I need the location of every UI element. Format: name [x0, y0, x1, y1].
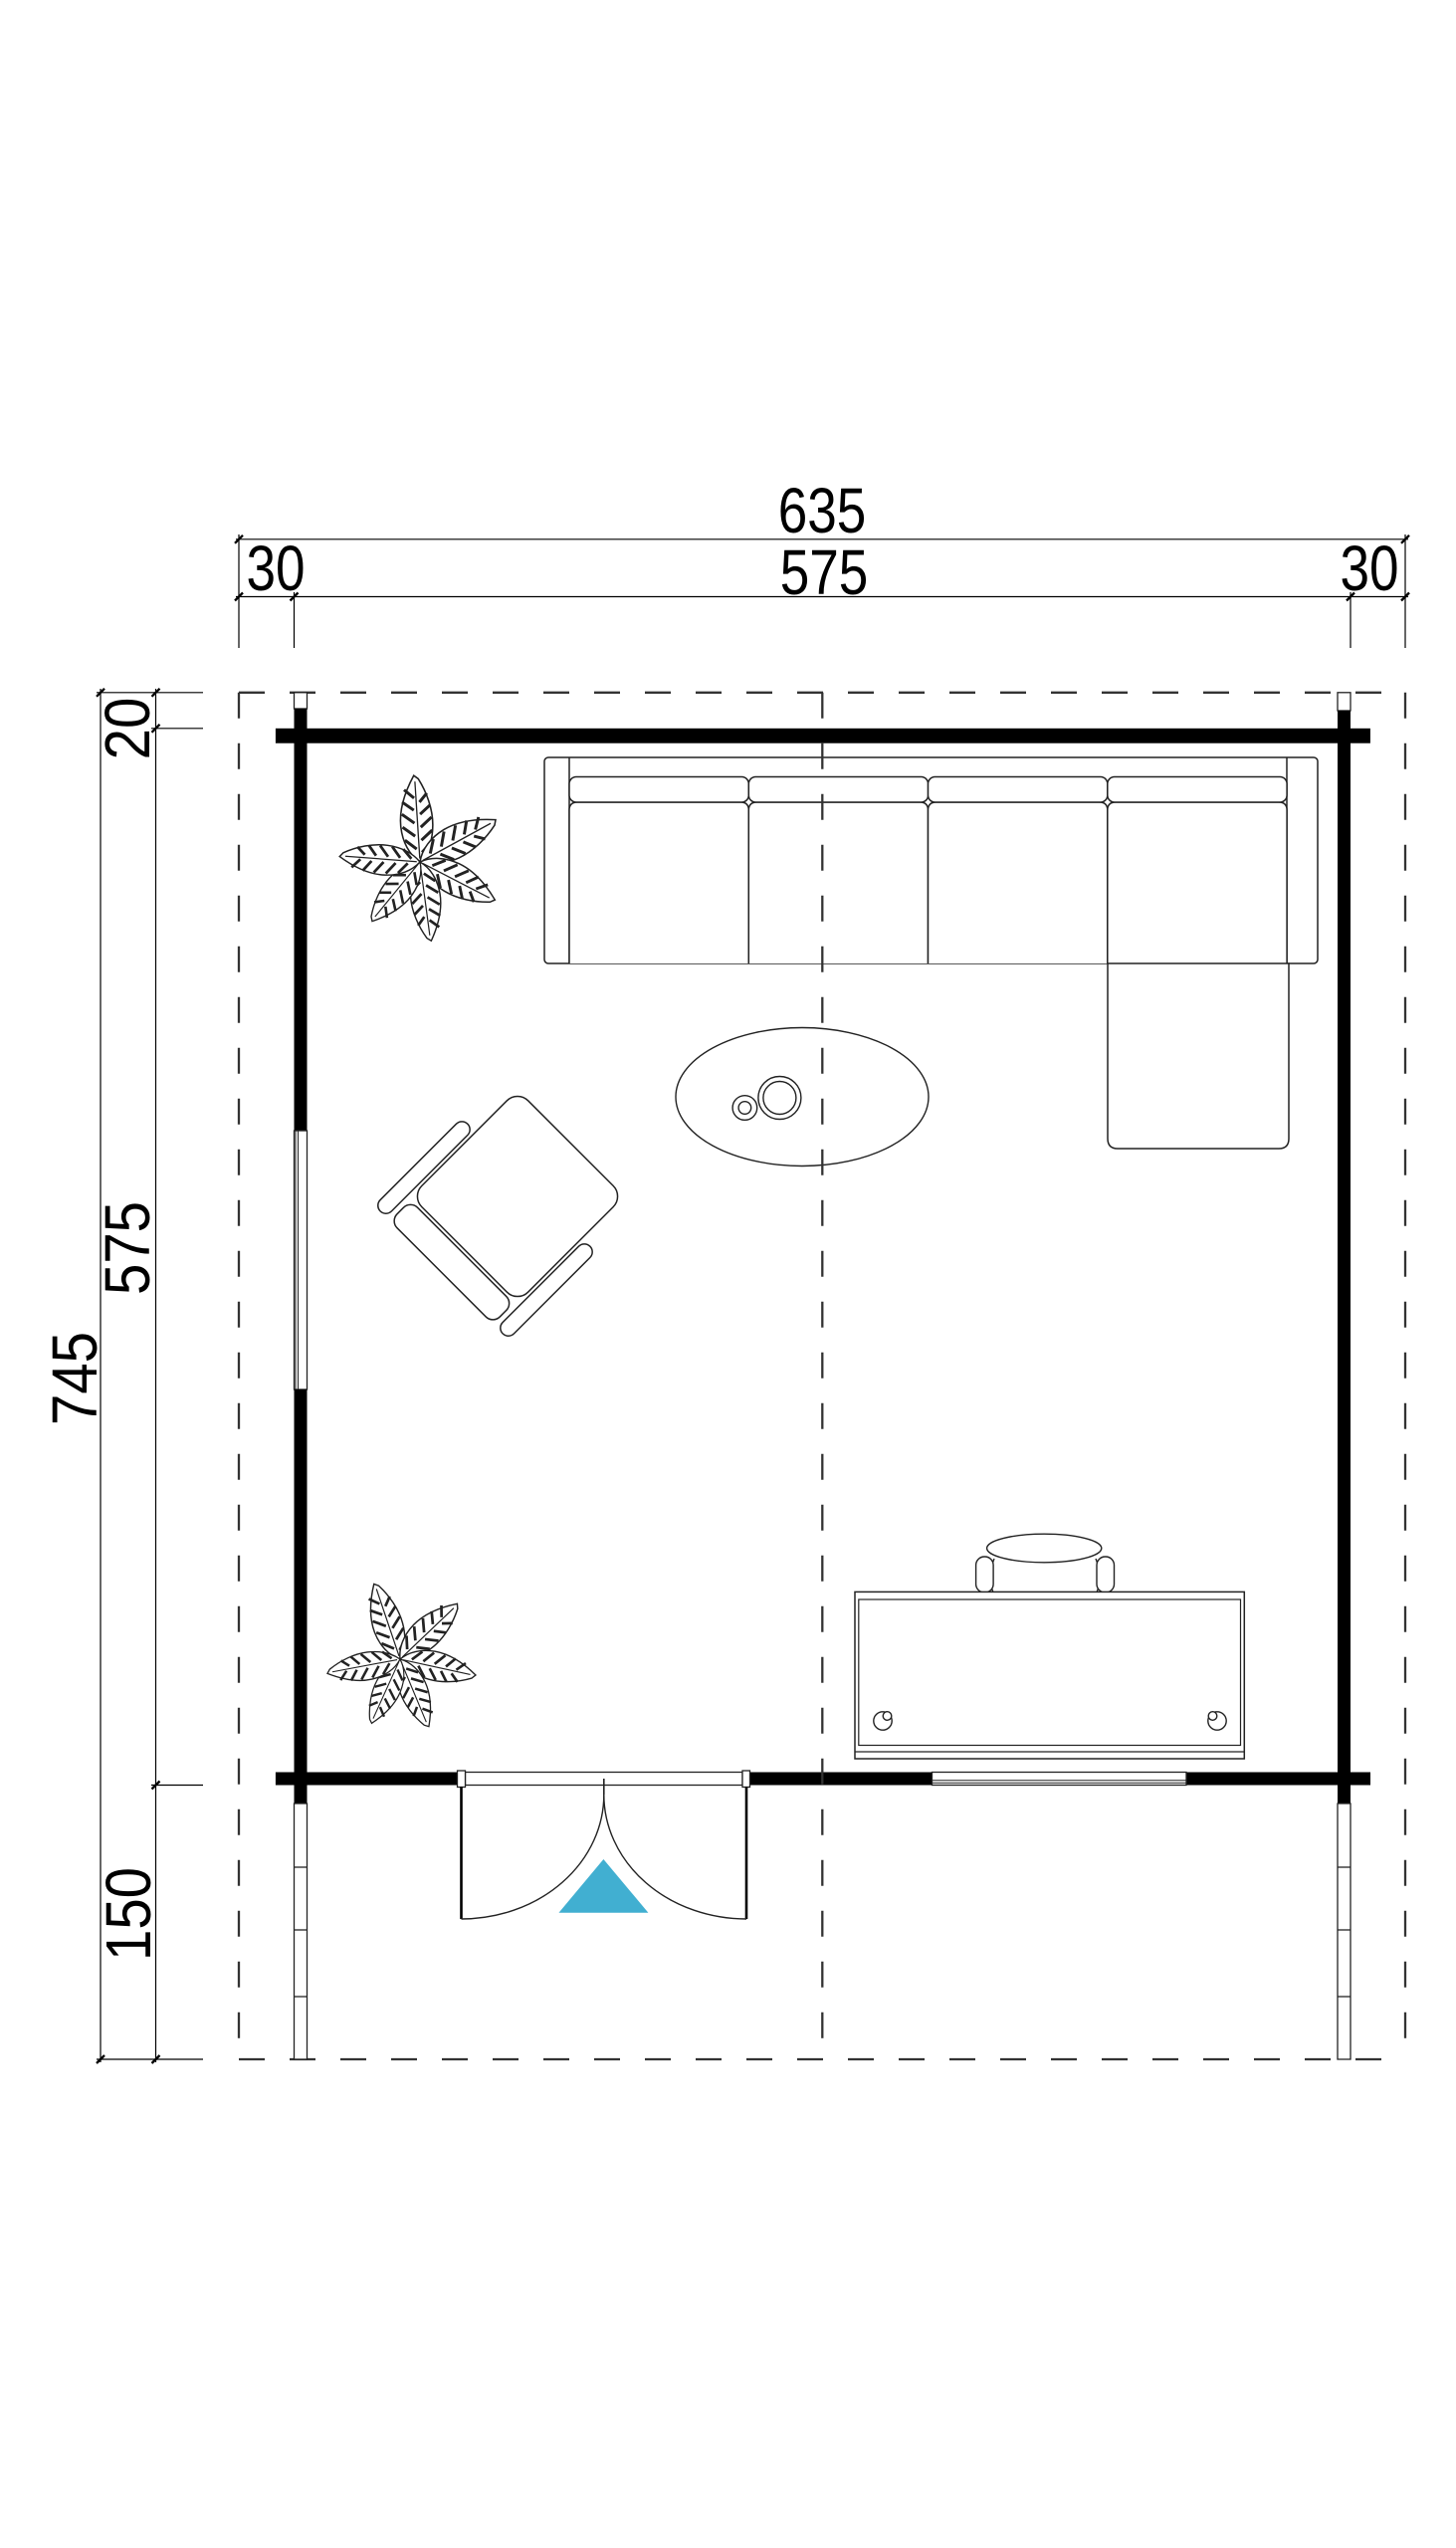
svg-text:30: 30	[1340, 533, 1398, 604]
svg-text:20: 20	[92, 698, 163, 760]
svg-text:30: 30	[246, 533, 305, 604]
svg-text:575: 575	[92, 1201, 163, 1295]
svg-text:150: 150	[93, 1867, 164, 1961]
svg-text:575: 575	[780, 537, 869, 608]
svg-text:745: 745	[39, 1332, 110, 1425]
svg-text:635: 635	[778, 476, 867, 546]
